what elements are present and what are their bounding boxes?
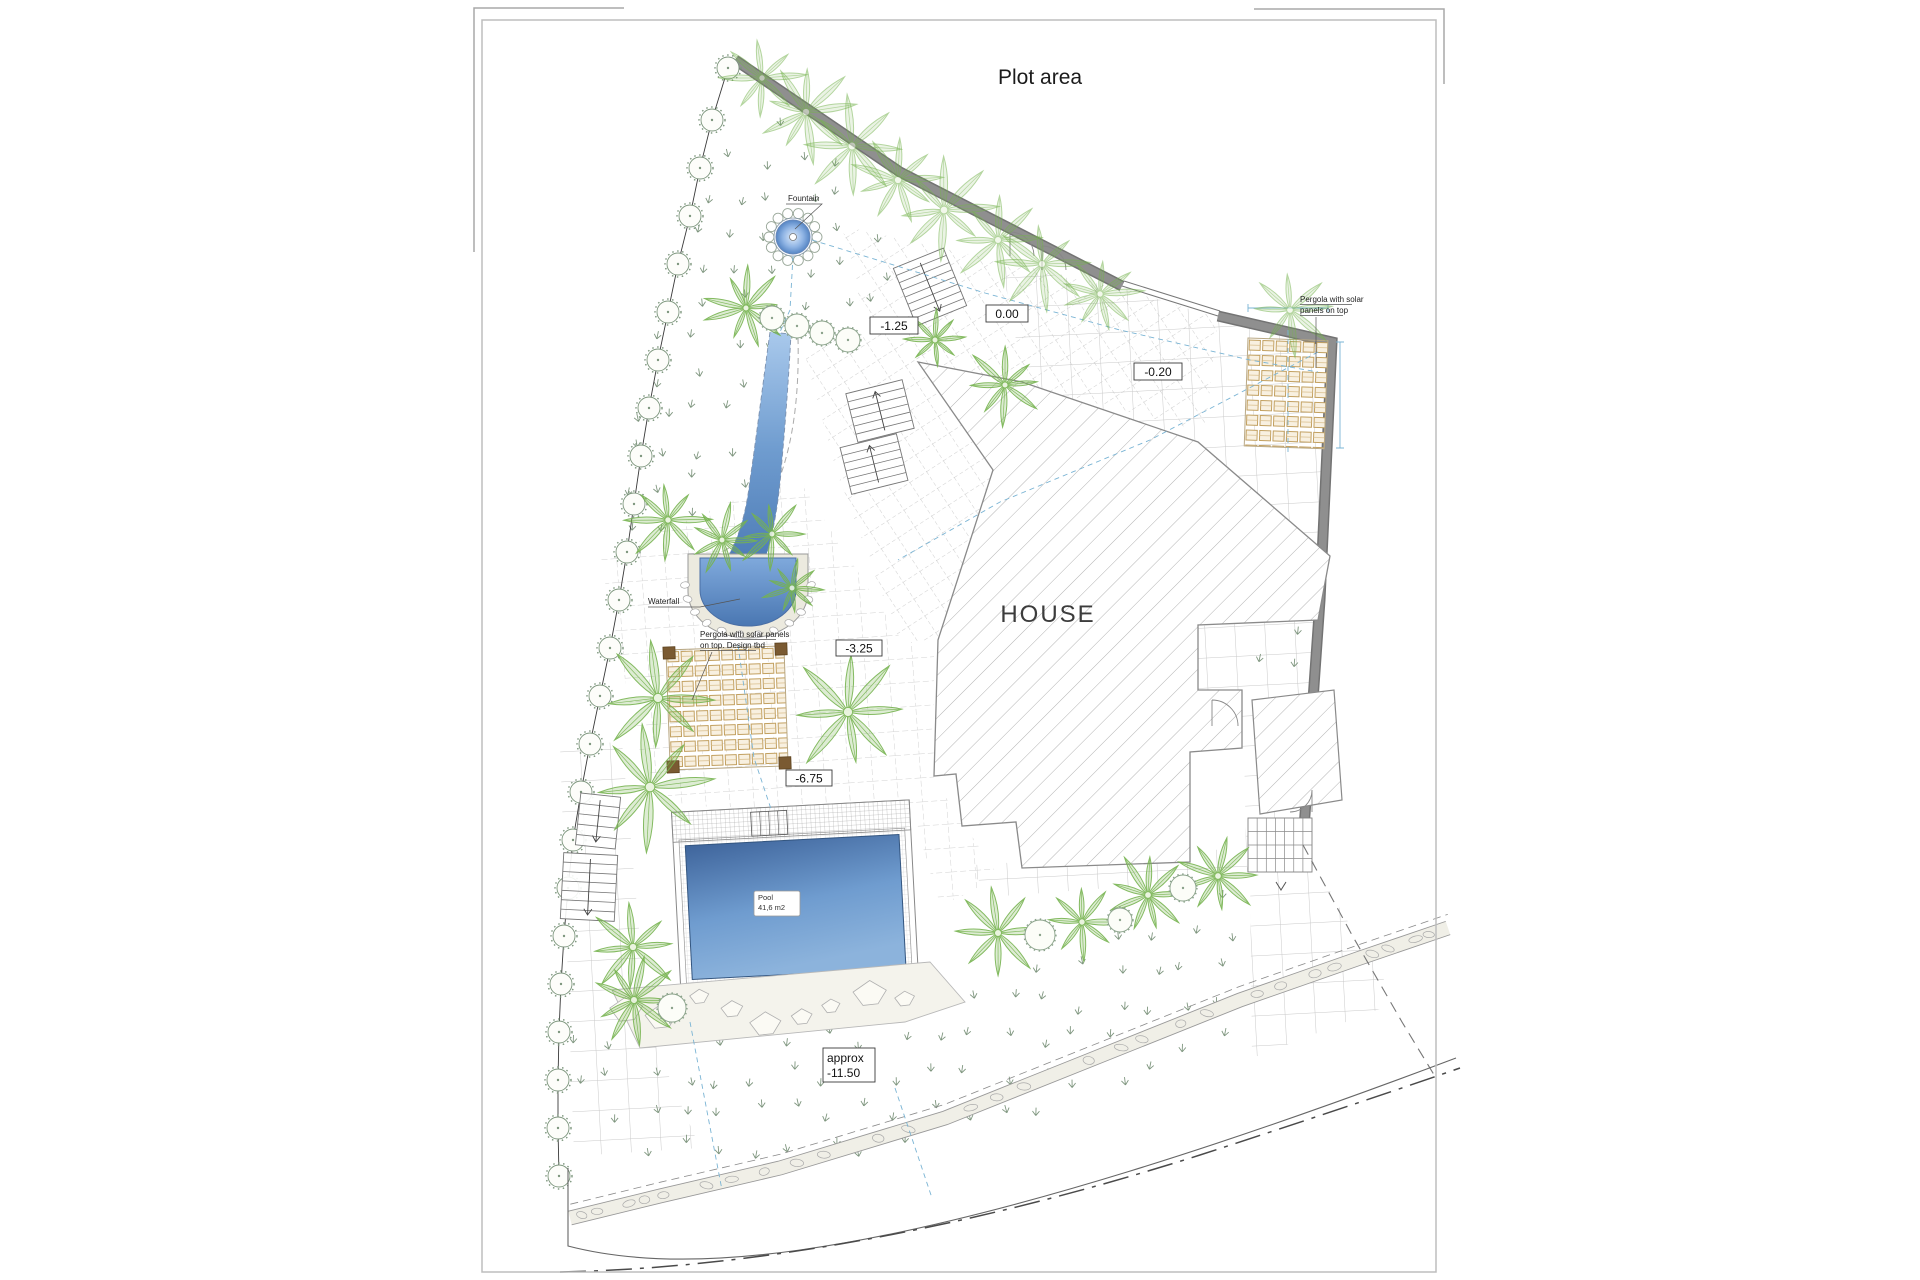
grass-mark	[1148, 932, 1156, 941]
hedge-bush-dot	[677, 263, 679, 265]
hedge-bush-dot	[689, 215, 691, 217]
hedge-bush-dot	[563, 935, 565, 937]
grass-mark	[1146, 1061, 1154, 1070]
grass-mark	[1193, 925, 1201, 934]
grass-mark	[729, 448, 736, 456]
hedge-bush	[545, 1067, 571, 1093]
shrub	[784, 313, 810, 339]
utility-line	[895, 1088, 932, 1198]
site-plan-drawing: Plot area HOUSE Fountain Waterfall Pergo…	[0, 0, 1920, 1280]
svg-text:-1.25: -1.25	[880, 319, 908, 333]
grass-mark	[730, 265, 738, 274]
hedge-bush	[548, 971, 574, 997]
house-label: HOUSE	[1000, 601, 1095, 628]
grass-mark	[1038, 990, 1047, 1000]
grass-mark	[1067, 1026, 1074, 1034]
grass-mark	[687, 399, 696, 408]
grass-mark	[768, 265, 776, 274]
palm-trunk	[940, 206, 948, 214]
palm-trunk	[932, 337, 938, 343]
shrub	[835, 327, 861, 353]
hedge-bush-dot	[558, 1031, 560, 1033]
level-marker-upper-court: -1.25	[870, 317, 918, 334]
shrub-dot	[671, 1007, 673, 1009]
hedge-bush	[677, 203, 703, 229]
grass-mark	[969, 990, 977, 999]
grass-mark	[684, 1106, 691, 1114]
svg-text:on top. Design tbd: on top. Design tbd	[700, 641, 765, 650]
hedge-bush-dot	[572, 839, 574, 841]
grass-mark	[698, 298, 706, 307]
grass-mark	[791, 1061, 798, 1069]
palm-trunk	[843, 707, 852, 716]
hedge-bush-dot	[711, 119, 713, 121]
shrub	[809, 320, 835, 346]
fountain-planting-ring	[783, 255, 793, 265]
fountain-planting-ring	[793, 209, 803, 219]
grass-mark	[889, 1112, 897, 1121]
grass-mark	[822, 1113, 831, 1122]
svg-text:-3.25: -3.25	[845, 642, 873, 656]
hedge-bush	[699, 107, 725, 133]
grass-mark	[1121, 1077, 1129, 1086]
hedge-bush-dot	[609, 647, 611, 649]
hedge-bush	[665, 251, 691, 277]
grass-mark	[629, 522, 637, 531]
svg-text:Pergola with solar panels: Pergola with solar panels	[700, 630, 789, 639]
grass-mark	[1179, 1044, 1186, 1052]
palm-trunk	[1145, 892, 1152, 899]
palm-trunk	[769, 531, 775, 537]
grass-mark	[715, 1146, 723, 1155]
palm-trunk	[802, 108, 809, 115]
grass-mark	[801, 152, 809, 161]
grass-mark	[802, 302, 810, 311]
staircase	[560, 853, 617, 922]
palm-trunk	[1002, 382, 1008, 388]
shrub-dot	[796, 325, 798, 327]
grass-mark	[794, 1098, 803, 1107]
grass-mark	[693, 451, 702, 461]
hedge-bush-dot	[557, 1079, 559, 1081]
plan-graphics	[545, 40, 1460, 1272]
grass-mark	[1184, 1002, 1192, 1011]
svg-text:approx: approx	[827, 1051, 864, 1065]
pool-label: Pool 41,6 m2	[754, 891, 800, 916]
grass-mark	[938, 1032, 947, 1041]
hedge-bush-dot	[589, 743, 591, 745]
shrub-dot	[1119, 919, 1121, 921]
hedge-bush-dot	[626, 551, 628, 553]
palm-trunk	[1038, 260, 1045, 267]
hedge-bush-dot	[667, 311, 669, 313]
grass-mark	[737, 340, 744, 348]
palm-trunk	[665, 517, 671, 523]
grass-mark	[1174, 961, 1182, 970]
hedge-bush	[636, 395, 662, 421]
hedge-bush-dot	[633, 503, 635, 505]
grass-mark	[658, 448, 666, 457]
grass-mark	[1121, 1002, 1128, 1010]
grass-mark	[1006, 1027, 1014, 1036]
palm-trunk	[1079, 919, 1085, 925]
grass-mark	[1033, 964, 1041, 973]
level-marker-entry: 0.00	[986, 305, 1028, 322]
svg-text:0.00: 0.00	[995, 307, 1019, 321]
grass-mark	[1114, 931, 1122, 940]
svg-text:Pergola with solar: Pergola with solar	[1300, 295, 1364, 304]
grass-mark	[723, 148, 732, 157]
grass-mark	[1074, 1006, 1082, 1015]
grass-mark	[831, 186, 839, 195]
hedge-bush	[687, 155, 713, 181]
grass-mark	[1069, 1080, 1076, 1088]
grass-mark	[687, 1077, 696, 1086]
grass-mark	[761, 192, 769, 201]
sheet-corner-mark-left	[474, 8, 624, 252]
shrub-dot	[847, 339, 849, 341]
page: Plot area HOUSE Fountain Waterfall Pergo…	[0, 0, 1920, 1280]
shrub	[759, 305, 785, 331]
hedge-bush	[577, 731, 603, 757]
grass-mark	[665, 408, 672, 416]
grass-mark	[836, 257, 843, 265]
grass-mark	[764, 161, 771, 169]
grass-mark	[1032, 1107, 1039, 1115]
shrub-dot	[1039, 934, 1041, 936]
palm-trunk	[994, 236, 1001, 243]
shrub	[1024, 919, 1056, 951]
grass-mark	[1001, 1104, 1010, 1114]
grass-mark	[739, 379, 747, 388]
grass-mark	[745, 1078, 753, 1087]
hedge-bush-dot	[657, 359, 659, 361]
grass-mark	[695, 368, 703, 377]
hedge-bush-dot	[727, 67, 729, 69]
palm-trunk	[848, 142, 856, 150]
palm-trunk	[894, 176, 901, 183]
palm-trunk	[629, 943, 636, 950]
level-marker-garden-upper: -3.25	[836, 640, 882, 656]
grass-mark	[1119, 965, 1126, 973]
shrub-dot	[1182, 887, 1184, 889]
pergola-post	[779, 757, 791, 769]
level-marker-terrace: -0.20	[1134, 363, 1182, 380]
grass-mark	[699, 264, 707, 273]
hedge-bush-dot	[648, 407, 650, 409]
grass-mark	[846, 298, 853, 306]
palm-trunk	[1287, 307, 1294, 314]
grass-mark	[689, 508, 696, 516]
grass-mark	[807, 269, 815, 277]
grass-mark	[1042, 1039, 1050, 1048]
grass-mark	[1229, 933, 1237, 942]
pergola-post	[775, 643, 787, 655]
hedge-bush-dot	[558, 1175, 560, 1177]
grass-mark	[1144, 1007, 1151, 1015]
grass-mark	[741, 479, 749, 488]
svg-text:panels on top: panels on top	[1300, 306, 1349, 315]
palm-trunk	[630, 996, 637, 1003]
hedge-bush	[621, 491, 647, 517]
palm-trunk	[719, 537, 725, 543]
house-wing-hatch	[1252, 690, 1342, 814]
fountain-planting-ring	[793, 255, 803, 265]
staircase	[575, 793, 620, 849]
grass-mark	[958, 1065, 966, 1074]
palm-trunk	[789, 585, 795, 591]
utility-line	[690, 1022, 722, 1190]
grass-mark	[752, 1150, 760, 1159]
svg-text:-11.50: -11.50	[827, 1066, 860, 1080]
hedge-bush-dot	[560, 983, 562, 985]
grass-mark	[927, 1063, 934, 1071]
grass-mark	[726, 229, 734, 238]
pergola-left	[663, 643, 791, 773]
pergola-right	[1244, 338, 1328, 449]
grass-mark	[1221, 1027, 1229, 1036]
svg-text:Pool: Pool	[758, 893, 773, 902]
pergola-post	[663, 647, 675, 659]
hedge-bush	[551, 923, 577, 949]
hedge-bush	[645, 347, 671, 373]
grass-mark	[832, 222, 840, 231]
hedge-bush-dot	[699, 167, 701, 169]
grass-mark	[1012, 989, 1020, 998]
palm-trunk	[653, 693, 662, 702]
shrub	[1107, 907, 1133, 933]
hedge-bush-dot	[557, 1127, 559, 1129]
hedge-bush-dot	[640, 455, 642, 457]
grass-mark	[1218, 958, 1227, 967]
svg-text:Waterfall: Waterfall	[648, 597, 679, 606]
palm-trunk	[759, 75, 765, 81]
grass-mark	[758, 1099, 766, 1108]
grass-mark	[903, 1031, 912, 1040]
hedge-bush	[614, 539, 640, 565]
grass-mark	[893, 1077, 900, 1085]
grass-mark	[710, 1080, 718, 1089]
grass-mark	[723, 400, 732, 409]
hedge-bush	[587, 683, 613, 709]
grass-mark	[860, 1097, 868, 1106]
palm-trunk	[743, 305, 749, 311]
grass-mark	[963, 1026, 972, 1035]
hedge-bush	[545, 1115, 571, 1141]
grass-mark	[653, 330, 662, 339]
grass-mark	[712, 1108, 719, 1116]
hedge-bush	[546, 1019, 572, 1045]
svg-text:-0.20: -0.20	[1144, 365, 1172, 379]
level-marker-lower: approx -11.50	[823, 1048, 875, 1082]
hedge-bush	[655, 299, 681, 325]
palm-trunk	[994, 929, 1001, 936]
palm-trunk	[1097, 291, 1103, 297]
grass-mark	[688, 469, 695, 477]
grass-mark	[1156, 966, 1165, 975]
fountain-planting-ring	[764, 232, 774, 242]
grass-mark	[687, 329, 695, 338]
palm-trunk	[1215, 873, 1222, 880]
palm-trunk	[645, 782, 655, 792]
pergola-right-panels	[1244, 338, 1328, 449]
fountain-planting-ring	[783, 209, 793, 219]
fountain-jet	[790, 234, 797, 241]
svg-text:41,6 m2: 41,6 m2	[758, 903, 785, 912]
grass-mark	[705, 194, 714, 203]
shrub-dot	[771, 317, 773, 319]
grass-mark	[738, 196, 747, 205]
shrub-dot	[821, 332, 823, 334]
svg-text:Fountain: Fountain	[788, 194, 819, 203]
hedge-bush-dot	[599, 695, 601, 697]
page-title: Plot area	[998, 66, 1082, 89]
hedge-bush	[628, 443, 654, 469]
hedge-bush	[606, 587, 632, 613]
grass-mark	[653, 484, 662, 493]
grass-mark	[783, 1038, 791, 1047]
svg-text:-6.75: -6.75	[795, 772, 823, 786]
level-marker-garden-mid: -6.75	[786, 770, 832, 786]
grass-mark	[1107, 1029, 1115, 1037]
hedge-bush-dot	[618, 599, 620, 601]
